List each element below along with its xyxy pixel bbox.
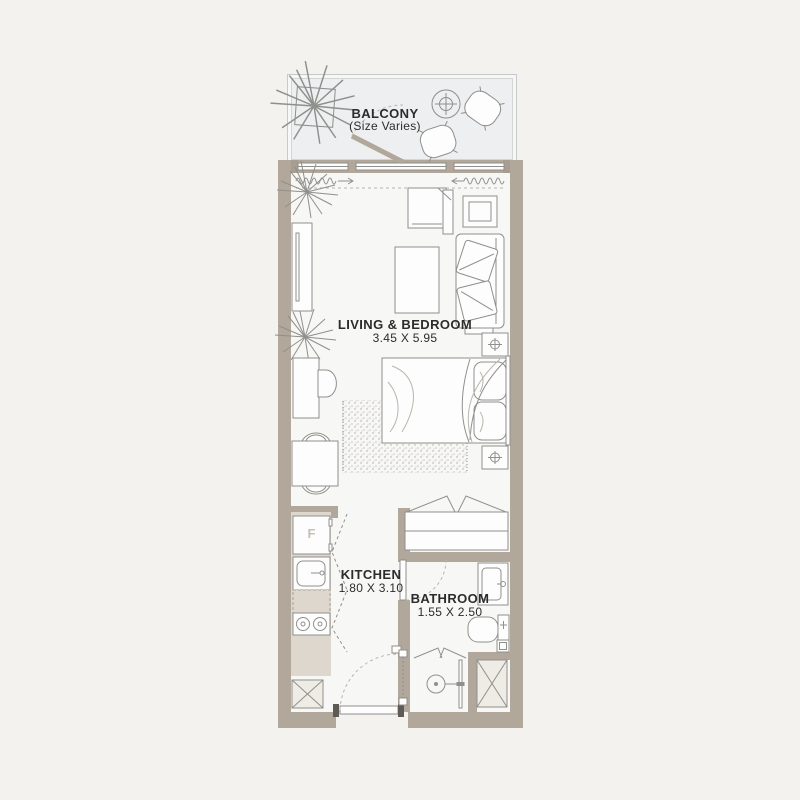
fridge-label: F — [293, 526, 330, 541]
shaft-icon — [292, 680, 323, 708]
washer-icon — [497, 640, 509, 652]
nightstand-icon — [482, 446, 508, 469]
cooktop-icon — [293, 613, 330, 635]
window-glazing — [298, 163, 504, 170]
toilet-icon — [468, 615, 509, 643]
room-label-kitchen: KITCHEN — [311, 568, 431, 582]
dining-table-icon — [292, 441, 338, 486]
room-sublabel-balcony: (Size Varies) — [310, 120, 460, 133]
balcony-chair-icon — [459, 85, 506, 132]
corner-sofa-icon — [408, 188, 453, 234]
floor-plan: BALCONY (Size Varies) LIVING & BEDROOM 3… — [0, 0, 800, 800]
room-dims-bathroom: 1.55 X 2.50 — [390, 606, 510, 619]
side-table-icon — [463, 196, 497, 227]
bed-icon — [382, 356, 510, 445]
desk-chair-icon — [318, 370, 336, 397]
shaft-icon — [477, 660, 507, 707]
nightstand-icon — [482, 333, 508, 356]
coffee-table-icon — [395, 247, 439, 313]
room-dims-living-bedroom: 3.45 X 5.95 — [330, 332, 480, 345]
desk-icon — [293, 358, 319, 418]
wall-panel-icon — [399, 650, 407, 705]
wardrobe-icon — [405, 496, 508, 550]
room-label-bathroom: BATHROOM — [390, 592, 510, 606]
room-label-living-bedroom: LIVING & BEDROOM — [330, 318, 480, 332]
shower-icon — [414, 648, 466, 708]
entry-door-icon — [333, 646, 406, 717]
tv-unit-icon — [292, 223, 312, 311]
